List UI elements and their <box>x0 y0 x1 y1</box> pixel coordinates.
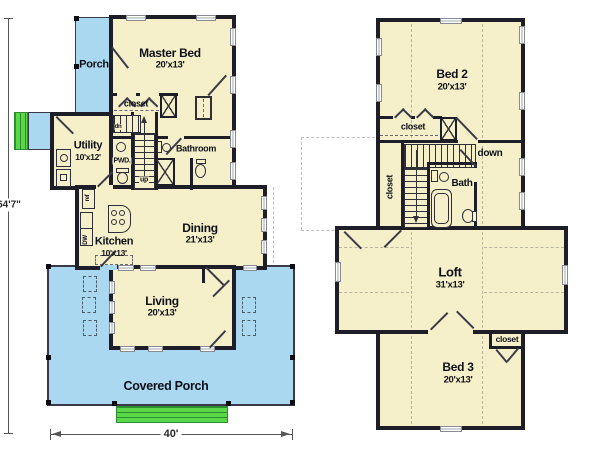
porch-label: Porch <box>79 60 109 71</box>
roofline-dashed <box>484 292 564 293</box>
down-label: down <box>478 149 503 159</box>
utility-label: Utility <box>74 141 102 152</box>
roofline-dashed <box>411 336 412 424</box>
dimension-tick <box>292 429 293 440</box>
kitchen-dims: 10'x13' <box>101 249 127 258</box>
side-steps <box>14 112 28 150</box>
window <box>562 265 568 285</box>
closet-front-dashed <box>380 135 438 136</box>
counter-divider <box>80 228 93 229</box>
wall-segment <box>112 136 134 139</box>
dining-label: Dining <box>182 222 218 234</box>
floor-plan-canvas: Porch Master Bed 20'x13' closet dn Utili… <box>0 0 600 450</box>
chase-box <box>160 94 177 118</box>
porch-post <box>112 401 117 406</box>
window <box>230 76 236 94</box>
dw-label: DW <box>83 235 89 244</box>
porch-post <box>74 16 79 21</box>
porch-column-outline <box>242 320 256 336</box>
closet-front-dashed <box>114 110 159 111</box>
roofline-dashed <box>339 292 409 293</box>
closet-hall-label: closet <box>386 175 395 199</box>
porch-post <box>46 355 51 360</box>
bathtub-inner <box>434 193 449 224</box>
closet-bed3-label: closet <box>496 335 519 344</box>
window <box>126 15 146 21</box>
roofline-dashed <box>484 247 564 248</box>
utility-dims: 10'x12' <box>75 153 101 162</box>
up-label: up <box>139 177 149 184</box>
master-bed-label: Master Bed <box>139 47 201 59</box>
window <box>196 15 216 21</box>
burner-icon <box>119 210 125 216</box>
roof-outline-dashed <box>301 137 302 230</box>
porch-column-outline <box>83 320 97 336</box>
roofline-dashed <box>482 24 483 138</box>
porch-post <box>46 264 51 269</box>
stair-arrow-head <box>413 216 419 223</box>
window <box>230 28 236 46</box>
living-label: Living <box>145 295 179 307</box>
porch-post <box>290 264 295 269</box>
window <box>118 265 134 271</box>
covered-porch-label: Covered Porch <box>123 380 208 393</box>
bath-label: Bath <box>450 179 473 189</box>
wall-segment <box>190 158 193 190</box>
window <box>230 130 236 148</box>
window <box>519 26 525 44</box>
porch-post <box>226 401 231 406</box>
window <box>376 38 382 56</box>
closet-bed2-label: closet <box>401 123 425 132</box>
porch-post <box>290 400 295 405</box>
porch-column-outline <box>83 276 97 292</box>
pwd-sink-icon <box>116 142 126 152</box>
height-dimension-line <box>8 18 9 434</box>
burner-icon <box>119 219 125 225</box>
roofline-dashed <box>482 232 483 328</box>
bath-sink-icon <box>439 172 449 182</box>
dimension-tick <box>50 429 51 440</box>
bath-door-opening <box>474 168 480 182</box>
window <box>261 218 267 232</box>
wall-segment <box>478 140 525 143</box>
dn-label: dn <box>115 124 122 130</box>
window <box>200 346 215 352</box>
window <box>519 192 525 210</box>
window <box>376 84 382 102</box>
side-entry-landing <box>28 112 52 150</box>
closet-opening <box>117 93 136 96</box>
dining-dims: 21'x13' <box>186 235 215 245</box>
bathroom-label: Bathroom <box>176 145 216 154</box>
stair-arrow-line <box>416 150 417 216</box>
pwd-toilet-icon <box>117 172 128 184</box>
window <box>519 92 525 110</box>
burner-icon <box>111 219 117 225</box>
window <box>148 346 163 352</box>
porch-post <box>290 355 295 360</box>
bed3-label: Bed 3 <box>442 361 473 373</box>
window <box>335 262 341 282</box>
window <box>261 240 267 254</box>
window <box>109 322 115 334</box>
wall-segment <box>489 346 525 349</box>
roof-outline-dashed <box>301 137 375 138</box>
bed2-label: Bed 2 <box>436 68 467 80</box>
porch-post <box>46 400 51 405</box>
bed3-dims: 20'x13' <box>444 375 473 385</box>
closet-label: closet <box>124 100 148 109</box>
burner-icon <box>111 210 117 216</box>
window <box>440 18 462 24</box>
porch-column-outline <box>82 297 96 313</box>
toilet-tank-icon <box>472 211 477 222</box>
window <box>140 265 156 271</box>
front-steps <box>116 406 228 423</box>
master-bed-dims: 20'x13' <box>156 60 185 70</box>
window <box>120 346 135 352</box>
overall-height-label: 64'7" <box>0 199 24 212</box>
dryer-door-icon <box>60 174 67 181</box>
loft-bed3-opening <box>428 330 473 334</box>
toilet-icon <box>195 164 206 178</box>
living-dims: 20'x13' <box>148 308 177 318</box>
roofline-dashed <box>339 247 409 248</box>
loft-dims: 31'x13' <box>436 280 465 290</box>
stair-arrow-line <box>144 122 145 176</box>
bath-sink-counter-icon <box>431 170 438 182</box>
dimension-arrow-right <box>281 431 290 437</box>
dimension-arrow-left <box>52 431 61 437</box>
window <box>440 426 462 432</box>
dimension-tick <box>4 433 13 434</box>
kitchen-porch-door-opening <box>100 265 117 270</box>
roofline-dashed <box>482 336 483 424</box>
porch-column-outline <box>242 297 256 313</box>
washer-door-icon <box>60 154 68 162</box>
overall-width-label: 40' <box>161 427 182 441</box>
porch-roof-dashed <box>273 187 274 263</box>
stair-arrow-head <box>141 116 147 123</box>
window <box>109 301 115 314</box>
dimension-tick <box>4 18 13 19</box>
kitchen-label: Kitchen <box>95 237 133 248</box>
window <box>519 158 525 176</box>
bed2-dims: 20'x13' <box>438 82 467 92</box>
window <box>109 281 115 294</box>
loft-label: Loft <box>438 266 461 279</box>
window <box>243 265 257 271</box>
linen-closet-dashed <box>203 99 204 117</box>
chase-box <box>440 117 457 141</box>
roofline-dashed <box>411 232 412 328</box>
window <box>230 162 236 180</box>
shower-box <box>155 158 175 186</box>
closet-opening <box>140 93 159 96</box>
pwd-label: PWD. <box>112 158 131 165</box>
window <box>261 196 267 210</box>
ref-label: ref <box>85 195 91 202</box>
